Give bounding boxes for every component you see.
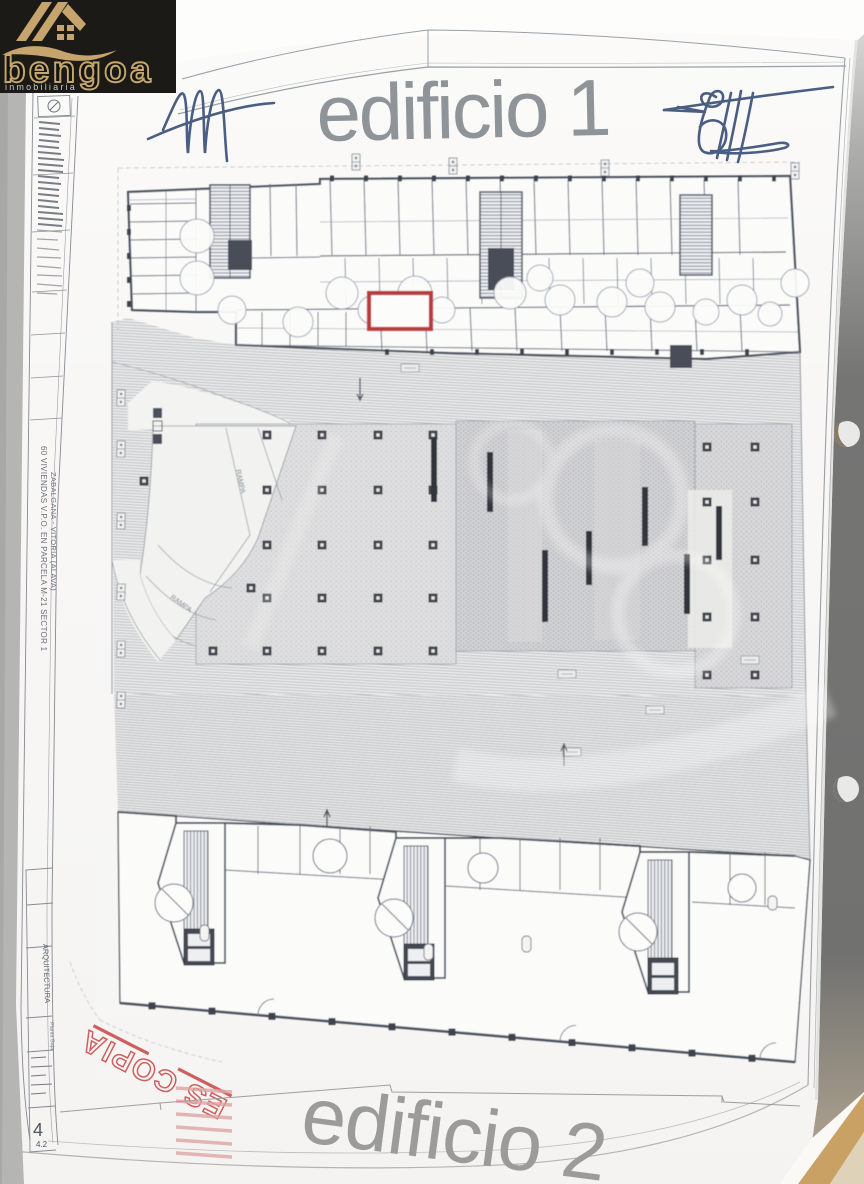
svg-text:Planta Baja: Planta Baja <box>48 1022 55 1051</box>
svg-text:60 VIVIENDAS V.P.O. EN PARCELA: 60 VIVIENDAS V.P.O. EN PARCELA M-21 SECT… <box>39 446 48 652</box>
svg-text:4: 4 <box>33 1120 43 1140</box>
svg-text:inmobiliaria: inmobiliaria <box>5 82 77 92</box>
svg-text:ZABALGANA - VITORIA (ALAVA): ZABALGANA - VITORIA (ALAVA) <box>49 472 58 591</box>
svg-text:4.2: 4.2 <box>36 1140 48 1149</box>
svg-text:edificio 1: edificio 1 <box>315 63 610 158</box>
